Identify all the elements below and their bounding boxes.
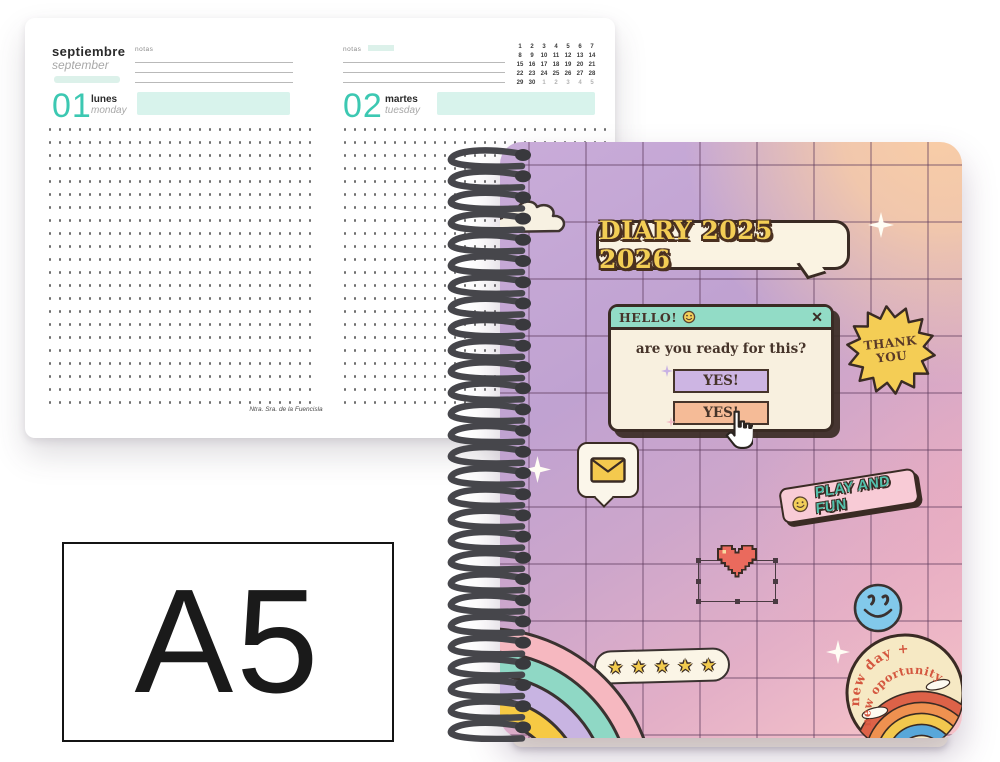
size-label: A5 [134, 568, 321, 716]
selection-handle [735, 599, 740, 604]
day-name-es: martes [385, 94, 420, 105]
note-line [343, 82, 505, 83]
calendar-day: 24 [538, 71, 550, 78]
day-label-monday: lunes monday [91, 94, 127, 116]
calendar-day: 3 [562, 80, 574, 87]
calendar-day: 30 [526, 80, 538, 87]
calendar-day: 26 [562, 71, 574, 78]
smiley-icon [682, 310, 696, 324]
calendar-day: 4 [550, 44, 562, 51]
star-icon: ★ [677, 657, 693, 674]
day-number-01: 01 [52, 88, 92, 124]
blue-smiley-icon [852, 582, 904, 634]
smiley-icon [790, 492, 810, 515]
calendar-day: 20 [574, 62, 586, 69]
note-line [135, 82, 293, 83]
calendar-day: 15 [514, 62, 526, 69]
day-highlight-tuesday [437, 92, 595, 115]
spiral-binding [444, 142, 544, 742]
dot-grid-left [45, 123, 313, 411]
hand-cursor-icon [723, 409, 753, 453]
notebook: DIARY 2025 2026 HELLO! ✕ are you ready f… [440, 134, 1000, 762]
calendar-day: 17 [538, 62, 550, 69]
dialog-titlebar: HELLO! ✕ [611, 307, 831, 330]
selection-handle [696, 579, 701, 584]
calendar-day: 13 [574, 53, 586, 60]
selection-handle [773, 558, 778, 563]
calendar-day: 6 [574, 44, 586, 51]
calendar-day: 1 [514, 44, 526, 51]
yes-button-secondary: YES! [673, 401, 769, 425]
yes-button-primary: YES! [673, 369, 769, 393]
calendar-day: 21 [586, 62, 598, 69]
notes-label: notas [343, 46, 505, 53]
calendar-day: 4 [574, 80, 586, 87]
day-name-es: lunes [91, 94, 127, 105]
holiday-note: Ntra. Sra. de la Fuencisla [221, 406, 351, 413]
calendar-day: 7 [586, 44, 598, 51]
notes-label: notas [135, 46, 293, 53]
calendar-day: 23 [526, 71, 538, 78]
calendar-day: 8 [514, 53, 526, 60]
day-number-02: 02 [343, 88, 383, 124]
calendar-day: 27 [574, 71, 586, 78]
notebook-cover: DIARY 2025 2026 HELLO! ✕ are you ready f… [500, 142, 962, 738]
note-line [135, 72, 293, 73]
note-line [135, 62, 293, 63]
dialog-title: HELLO! [619, 310, 677, 325]
day-highlight-monday [137, 92, 290, 115]
calendar-day: 14 [586, 53, 598, 60]
calendar-day: 18 [550, 62, 562, 69]
calendar-day: 28 [586, 71, 598, 78]
calendar-day: 22 [514, 71, 526, 78]
pixel-heart-icon [716, 544, 758, 580]
dialog-question: are you ready for this? [611, 341, 831, 357]
note-line [343, 72, 505, 73]
note-line [343, 62, 505, 63]
selection-handle [773, 579, 778, 584]
calendar-day: 19 [562, 62, 574, 69]
calendar-day: 16 [526, 62, 538, 69]
day-name-en: monday [91, 105, 127, 116]
calendar-day: 2 [526, 44, 538, 51]
mail-sticker [577, 442, 639, 498]
calendar-day: 5 [586, 80, 598, 87]
thank-you-text: YOU [876, 348, 908, 365]
calendar-day: 10 [538, 53, 550, 60]
calendar-day: 1 [538, 80, 550, 87]
selection-handle [696, 558, 701, 563]
calendar-day: 25 [550, 71, 562, 78]
calendar-day: 9 [526, 53, 538, 60]
mini-month-calendar: 1234567891011121314151617181920212223242… [514, 44, 598, 87]
calendar-day: 11 [550, 53, 562, 60]
size-badge: A5 [62, 542, 394, 742]
day-label-tuesday: martes tuesday [385, 94, 420, 116]
calendar-day: 2 [550, 80, 562, 87]
thank-you-sticker: THANK YOU [842, 301, 941, 400]
calendar-day: 3 [538, 44, 550, 51]
selection-handle [696, 599, 701, 604]
star-icon: ★ [701, 656, 717, 673]
calendar-day: 12 [562, 53, 574, 60]
selection-handle [773, 599, 778, 604]
retro-dialog-window: HELLO! ✕ are you ready for this? YES! YE… [608, 304, 834, 432]
product-photo: septiembre september notas notas 1234567… [0, 0, 1000, 762]
calendar-day: 29 [514, 80, 526, 87]
close-icon: ✕ [811, 310, 823, 324]
title-speech-bubble: DIARY 2025 2026 [596, 220, 850, 270]
day-name-en: tuesday [385, 105, 420, 116]
calendar-day: 5 [562, 44, 574, 51]
envelope-icon [590, 457, 626, 483]
sparkle-icon [661, 365, 673, 377]
